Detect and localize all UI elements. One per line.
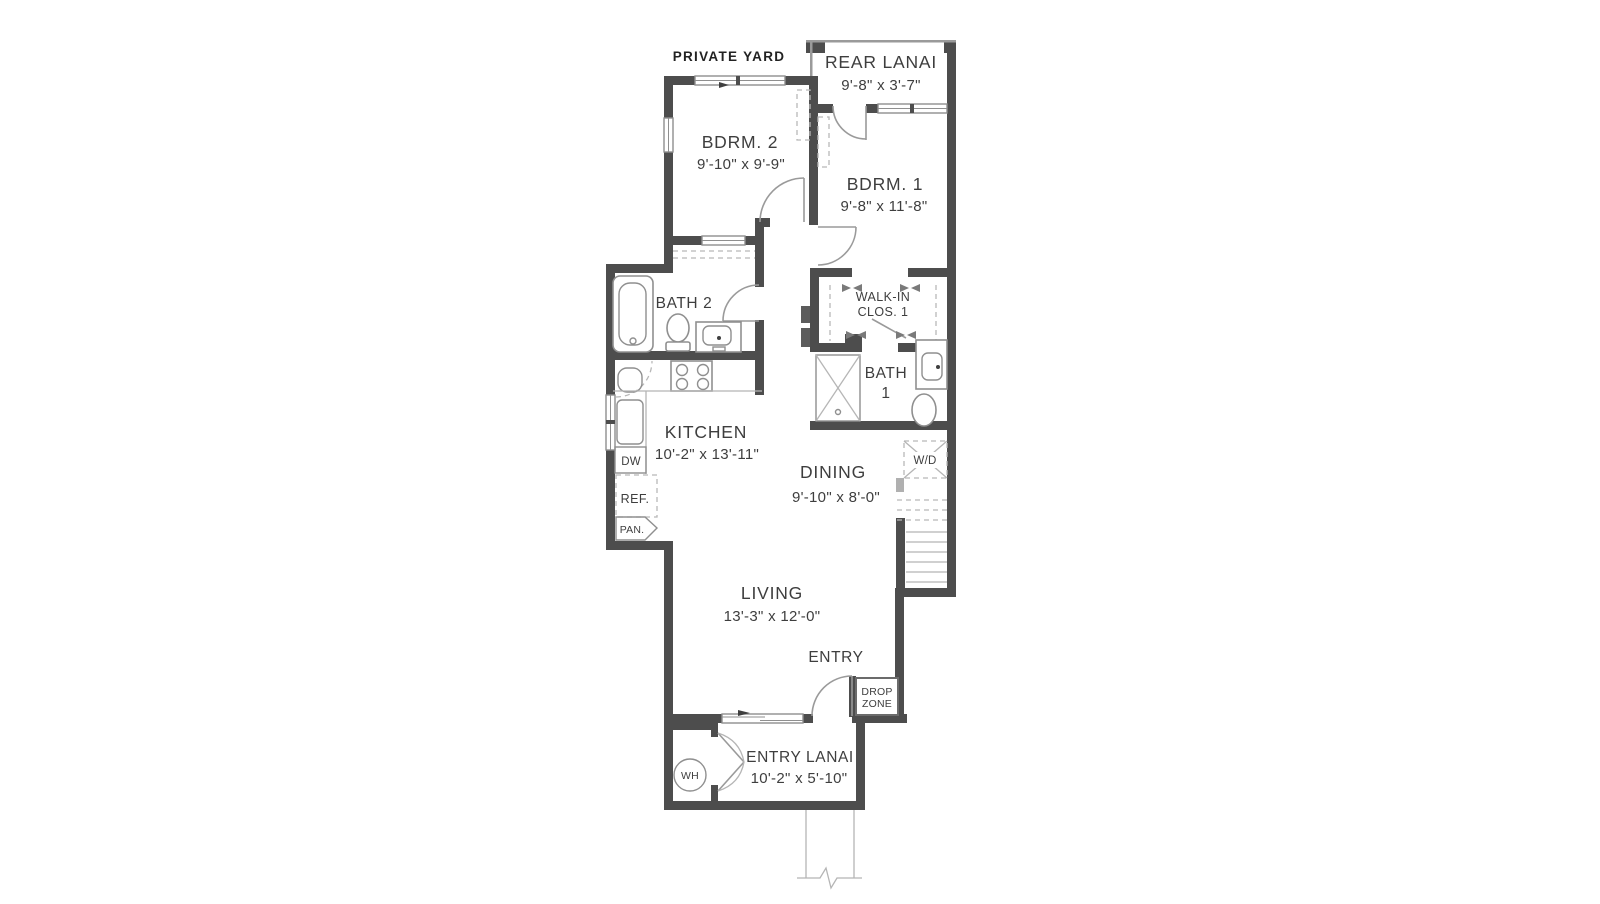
window-bdrm2-top [695,76,785,85]
bdrm1-label: BDRM. 1 [847,174,924,194]
pantry-label: PAN. [620,524,645,536]
dining-dims: 9'-10" x 8'-0" [792,489,880,506]
rear-lanai-label: REAR LANAI [825,52,937,72]
living-label: LIVING [741,583,803,603]
door-bath2 [723,285,759,321]
bdrm2-dims: 9'-10" x 9'-9" [697,156,785,173]
floor-plan-page: PRIVATE YARD REAR LANAI 9'-8" x 3'-7" BD… [0,0,1600,904]
walkin-clos1-label-line1: WALK-IN [856,290,910,304]
walkin-clos1-label-line2: CLOS. 1 [858,305,909,319]
bathtub-icon [613,276,653,352]
sliding-door-living [722,710,803,723]
floor-plan-svg: PRIVATE YARD REAR LANAI 9'-8" x 3'-7" BD… [0,0,1600,904]
kitchen-dims: 10'-2" x 13'-11" [655,446,759,463]
bath1-label-line2: 1 [881,385,890,402]
entry-label: ENTRY [808,649,863,666]
door-bdrm1-lanai [833,106,866,140]
dining-label: DINING [800,462,866,482]
drop-zone-label-line1: DROP [861,686,892,698]
bdrm2-label: BDRM. 2 [702,132,779,152]
dishwasher-label: DW [621,456,641,468]
window-kitchen-left [606,395,615,450]
living-dims: 13'-3" x 12'-0" [724,608,821,625]
door-bdrm1-hall [818,227,856,265]
vanity-sink-icon [696,322,741,352]
entry-lanai-dims: 10'-2" x 5'-10" [751,770,848,787]
door-bdrm2 [760,178,804,222]
bath1-label-line1: BATH [865,365,908,382]
toilet-icon [666,314,690,351]
door-entry [812,676,852,716]
rear-lanai-dims: 9'-8" x 3'-7" [841,77,920,94]
private-yard-label: PRIVATE YARD [673,49,786,64]
entry-lanai-label: ENTRY LANAI [746,749,854,766]
dashed-storage-outline [797,90,810,140]
washer-dryer-label: W/D [914,455,937,467]
drop-zone-label-line2: ZONE [862,698,892,710]
water-heater-label: WH [681,770,699,782]
bdrm1-dims: 9'-8" x 11'-8" [840,198,927,215]
toilet-icon [912,394,936,426]
walkway [797,810,862,888]
shower-icon [816,355,860,421]
kitchen-sink-icon [617,400,643,444]
stove-icon [671,361,712,391]
refrigerator-label: REF. [621,492,650,506]
window-bdrm2-left [664,118,673,152]
door-wh-bifold [718,733,744,791]
dashed-storage-outline [818,117,829,167]
kitchen-label: KITCHEN [665,422,747,442]
bath2-label: BATH 2 [656,295,713,312]
vanity-sink-icon [916,340,947,389]
window-rear-lanai [878,104,947,113]
